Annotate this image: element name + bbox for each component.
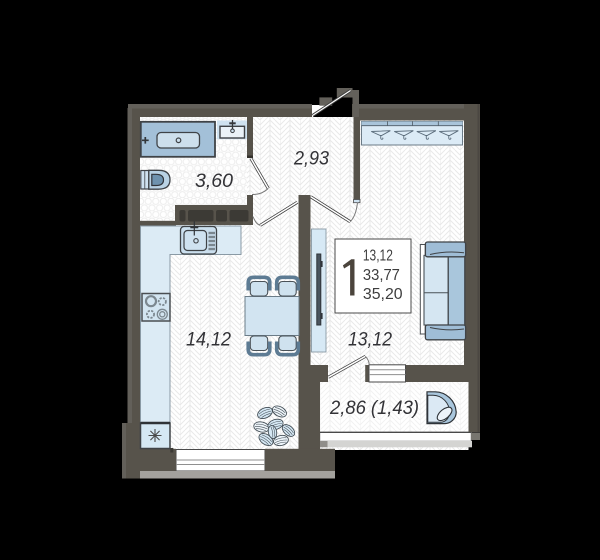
svg-text:3,60: 3,60 (195, 170, 233, 192)
svg-text:13,12: 13,12 (348, 329, 392, 351)
svg-text:13,12: 13,12 (363, 248, 393, 265)
svg-text:2,93: 2,93 (293, 148, 329, 170)
svg-text:2,86 (1,43): 2,86 (1,43) (329, 397, 419, 419)
svg-text:33,77: 33,77 (363, 267, 400, 284)
svg-text:14,12: 14,12 (186, 329, 231, 351)
svg-text:35,20: 35,20 (363, 286, 403, 303)
